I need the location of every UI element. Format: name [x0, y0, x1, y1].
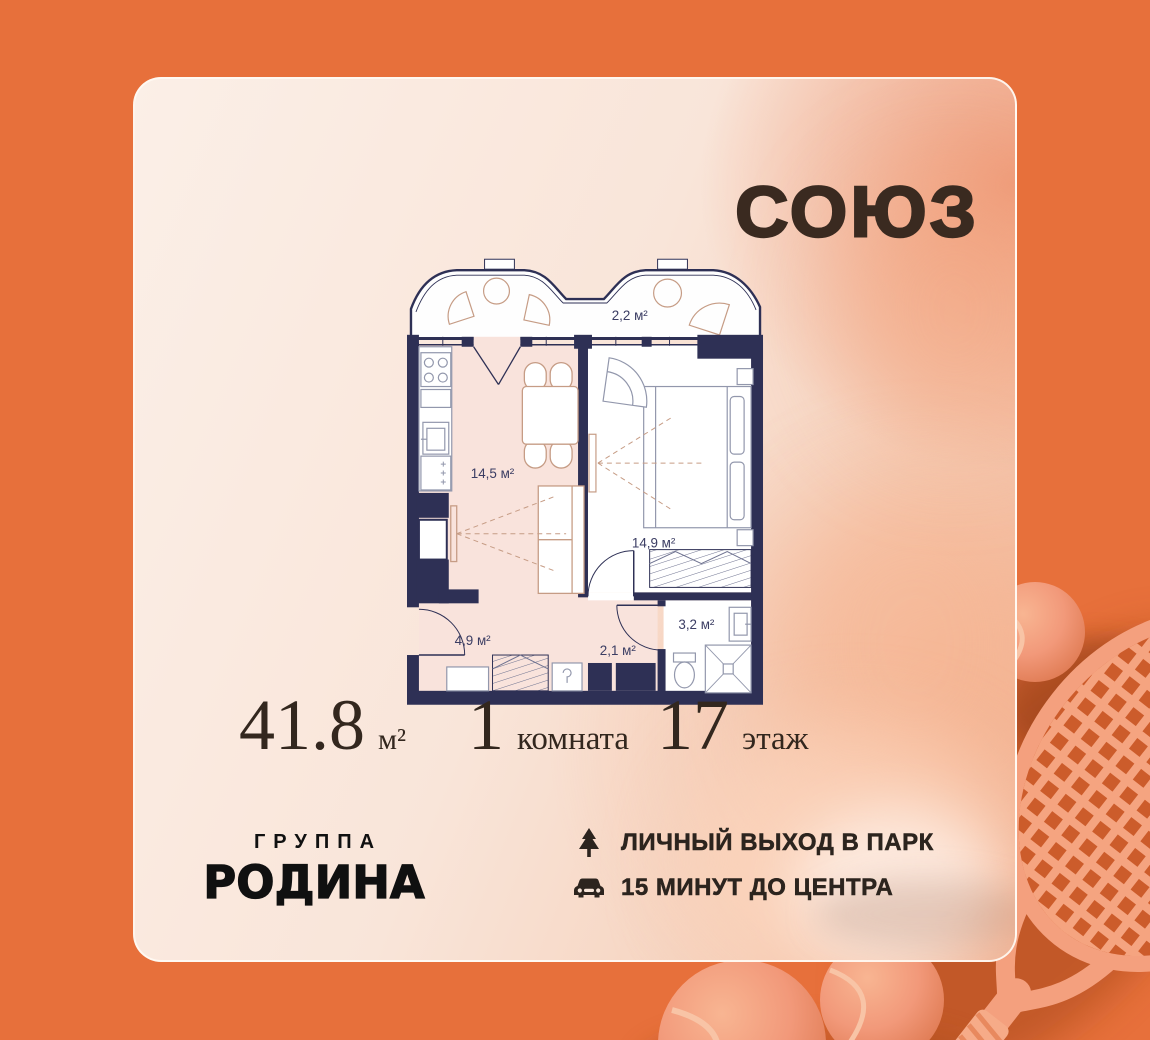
floor-value: 17 — [657, 689, 729, 761]
floor-plan-svg: 2,2 м² — [407, 257, 765, 705]
stat-area: 41.8 м² — [239, 689, 406, 761]
room-label-kitchen: 14,5 м² — [471, 466, 515, 481]
feature-text: ЛИЧНЫЙ ВЫХОД В ПАРК — [621, 829, 934, 857]
info-card: СОЮЗ — [133, 77, 1017, 962]
tennis-ball-left — [658, 960, 826, 1040]
floor-unit: этаж — [742, 721, 808, 758]
room-label-bedroom: 14,9 м² — [632, 536, 676, 551]
feature-center: 15 МИНУТ ДО ЦЕНТРА — [573, 872, 934, 904]
room-label-balcony: 2,2 м² — [612, 308, 649, 323]
project-logo: СОЮЗ — [735, 176, 979, 248]
rooms-unit: комната — [517, 721, 629, 758]
room-balcony: 2,2 м² — [411, 259, 760, 339]
area-value: 41.8 — [239, 689, 365, 761]
developer-group-label: ГРУППА — [180, 831, 448, 854]
stat-rooms: 1 комната — [468, 689, 629, 761]
developer-logo: ГРУППА РОДИНА — [180, 831, 448, 909]
room-label-bathroom: 3,2 м² — [678, 617, 715, 632]
shaft-niche — [419, 520, 447, 560]
room-label-hallway: 4,9 м² — [455, 633, 492, 648]
rooms-value: 1 — [468, 689, 504, 761]
bedroom-wardrobe — [650, 550, 751, 588]
developer-name: РОДИНА — [180, 856, 448, 909]
car-icon — [573, 872, 605, 904]
area-unit: м² — [378, 723, 406, 757]
room-label-corridor: 2,1 м² — [600, 643, 637, 658]
stats-row: 41.8 м² 1 комната 17 этаж — [239, 689, 808, 761]
tree-icon — [573, 827, 605, 859]
floor-plan: 2,2 м² — [407, 257, 765, 705]
feature-text: 15 МИНУТ ДО ЦЕНТРА — [621, 874, 893, 902]
stat-floor: 17 этаж — [657, 689, 808, 761]
features-list: ЛИЧНЫЙ ВЫХОД В ПАРК 15 МИНУТ ДО ЦЕНТРА — [573, 827, 934, 917]
kitchen-fixtures — [419, 347, 452, 491]
balcony-door-opening — [474, 337, 521, 347]
windows — [417, 337, 699, 346]
frost-blob — [775, 479, 1017, 809]
feature-park: ЛИЧНЫЙ ВЫХОД В ПАРК — [573, 827, 934, 859]
real-estate-ad-banner[interactable]: СОЮЗ — [0, 0, 1150, 1040]
